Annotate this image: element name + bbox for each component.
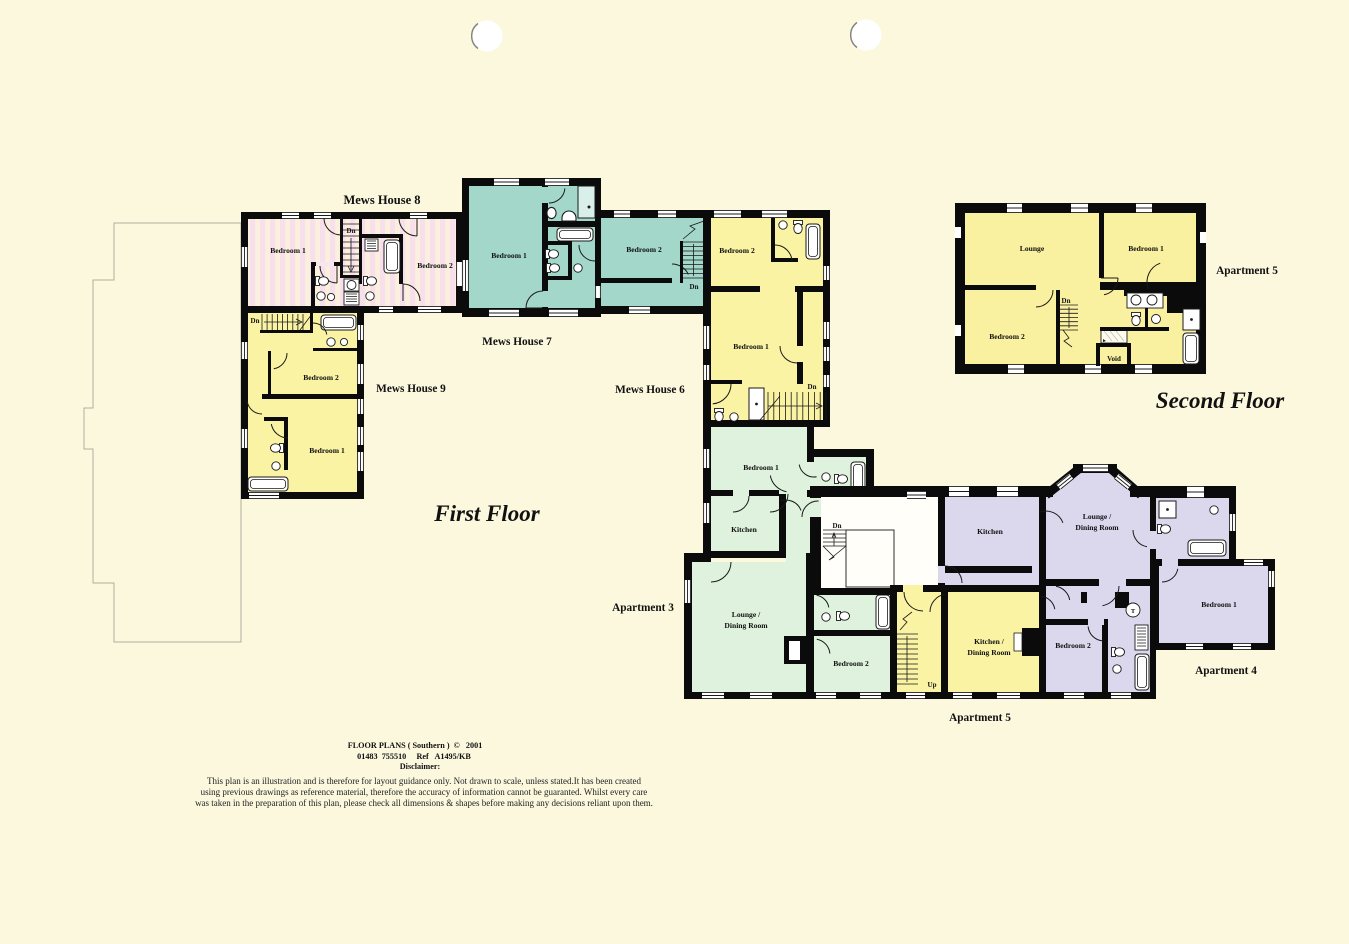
svg-text:Bedroom 1: Bedroom 1: [1201, 600, 1237, 609]
svg-text:Bedroom 1: Bedroom 1: [309, 446, 345, 455]
svg-text:Lounge /: Lounge /: [732, 610, 761, 619]
svg-text:Bedroom 2: Bedroom 2: [833, 659, 869, 668]
svg-text:Apartment 5: Apartment 5: [1216, 265, 1278, 277]
svg-text:Bedroom 2: Bedroom 2: [417, 261, 453, 270]
svg-text:Bedroom 2: Bedroom 2: [626, 245, 662, 254]
svg-text:Kitchen: Kitchen: [731, 525, 758, 534]
svg-text:Apartment 3: Apartment 3: [612, 602, 674, 614]
svg-text:Dn: Dn: [690, 283, 699, 291]
svg-text:Dn: Dn: [251, 317, 260, 325]
svg-text:Mews House 8: Mews House 8: [343, 193, 420, 207]
svg-text:01483 755510 Ref A1495/: 01483 755510 Ref A1495/KB: [357, 752, 471, 761]
svg-text:was taken in the preparation o: was taken in the preparation of this pla…: [195, 798, 653, 808]
svg-text:Dn: Dn: [1062, 297, 1071, 305]
svg-text:Dining Room: Dining Room: [1075, 523, 1119, 532]
svg-text:Bedroom 2: Bedroom 2: [303, 373, 339, 382]
svg-text:Bedroom 1: Bedroom 1: [743, 463, 779, 472]
svg-text:using previous drawings as ref: using previous drawings as reference mat…: [201, 787, 648, 797]
svg-text:Bedroom 2: Bedroom 2: [989, 332, 1025, 341]
svg-text:Mews House 6: Mews House 6: [615, 384, 685, 396]
svg-text:Mews House 7: Mews House 7: [482, 336, 552, 348]
svg-text:Apartment 5: Apartment 5: [949, 712, 1011, 724]
svg-text:Bedroom 1: Bedroom 1: [1128, 244, 1164, 253]
svg-text:Dining Room: Dining Room: [724, 621, 768, 630]
svg-text:Apartment 4: Apartment 4: [1195, 665, 1257, 677]
svg-text:Dining Room: Dining Room: [967, 648, 1011, 657]
svg-text:Kitchen: Kitchen: [977, 527, 1004, 536]
svg-text:Dn: Dn: [808, 383, 817, 391]
svg-text:Dn: Dn: [833, 522, 842, 530]
svg-text:Up: Up: [928, 681, 937, 689]
svg-text:Second Floor: Second Floor: [1156, 388, 1285, 413]
svg-text:Void: Void: [1107, 355, 1121, 363]
svg-text:Kitchen /: Kitchen /: [974, 637, 1005, 646]
svg-text:Mews House 9: Mews House 9: [376, 383, 446, 395]
svg-text:This plan is an illustration a: This plan is an illustration and is ther…: [207, 776, 642, 786]
svg-text:FLOOR PLANS ( Southern ) ©: FLOOR PLANS ( Southern ) © 2001: [348, 741, 483, 750]
svg-text:Bedroom 1: Bedroom 1: [270, 246, 306, 255]
svg-text:First Floor: First Floor: [433, 501, 541, 526]
svg-text:Dn: Dn: [347, 227, 356, 235]
svg-text:Disclaimer:: Disclaimer:: [400, 762, 440, 771]
svg-text:Bedroom 2: Bedroom 2: [719, 246, 755, 255]
svg-text:Lounge: Lounge: [1020, 244, 1045, 253]
svg-text:Bedroom 2: Bedroom 2: [1055, 641, 1091, 650]
svg-text:Bedroom 1: Bedroom 1: [733, 342, 769, 351]
svg-text:Bedroom 1: Bedroom 1: [491, 251, 527, 260]
svg-text:T: T: [1131, 608, 1136, 615]
svg-text:Lounge /: Lounge /: [1083, 512, 1112, 521]
